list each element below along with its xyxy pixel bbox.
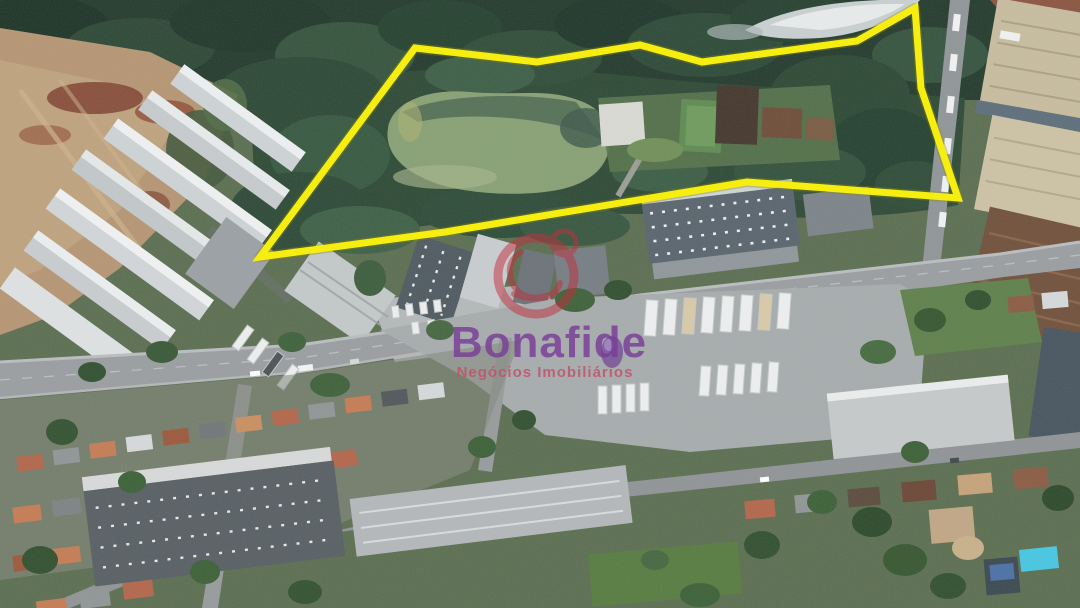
aerial-photo-canvas: Bonafide Negócios Imobiliários xyxy=(0,0,1080,608)
watermark-tagline-text: Negócios Imobiliários xyxy=(457,364,634,381)
aerial-photo: Bonafide Negócios Imobiliários xyxy=(0,0,1080,608)
watermark-brand-text: Bonafide xyxy=(451,318,647,367)
